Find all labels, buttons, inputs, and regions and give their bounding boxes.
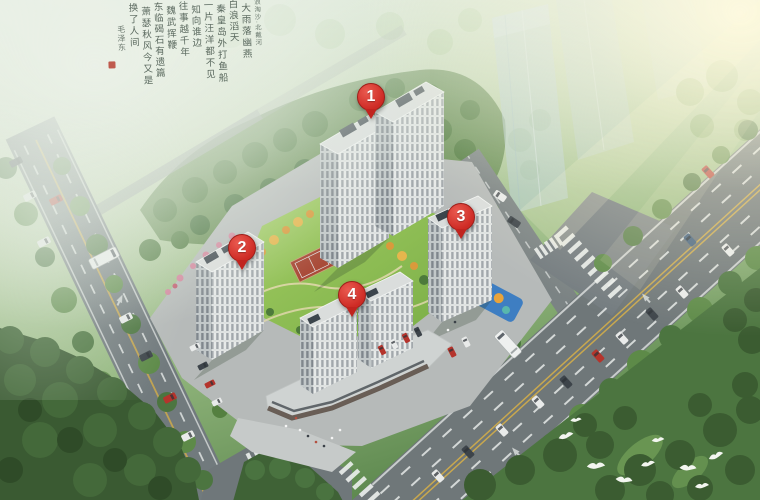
marker-number: 4 (348, 286, 357, 304)
building-marker-4[interactable]: 4 (338, 281, 366, 317)
building-marker-2[interactable]: 2 (228, 234, 256, 270)
marker-tail (365, 109, 377, 119)
aerial-site-plan: 浪淘沙·北戴河 大雨落幽燕白浪滔天秦皇岛外打鱼船一片汪洋都不见知向谁边往事越千年… (0, 0, 760, 500)
building-markers: 1234 (0, 0, 760, 500)
marker-circle: 2 (228, 234, 256, 262)
marker-number: 1 (367, 88, 376, 106)
marker-circle: 3 (447, 203, 475, 231)
marker-number: 2 (238, 239, 247, 257)
marker-number: 3 (457, 208, 466, 226)
marker-circle: 1 (357, 83, 385, 111)
building-marker-3[interactable]: 3 (447, 203, 475, 239)
building-marker-1[interactable]: 1 (357, 83, 385, 119)
marker-tail (346, 307, 358, 317)
marker-circle: 4 (338, 281, 366, 309)
marker-tail (236, 260, 248, 270)
marker-tail (455, 229, 467, 239)
